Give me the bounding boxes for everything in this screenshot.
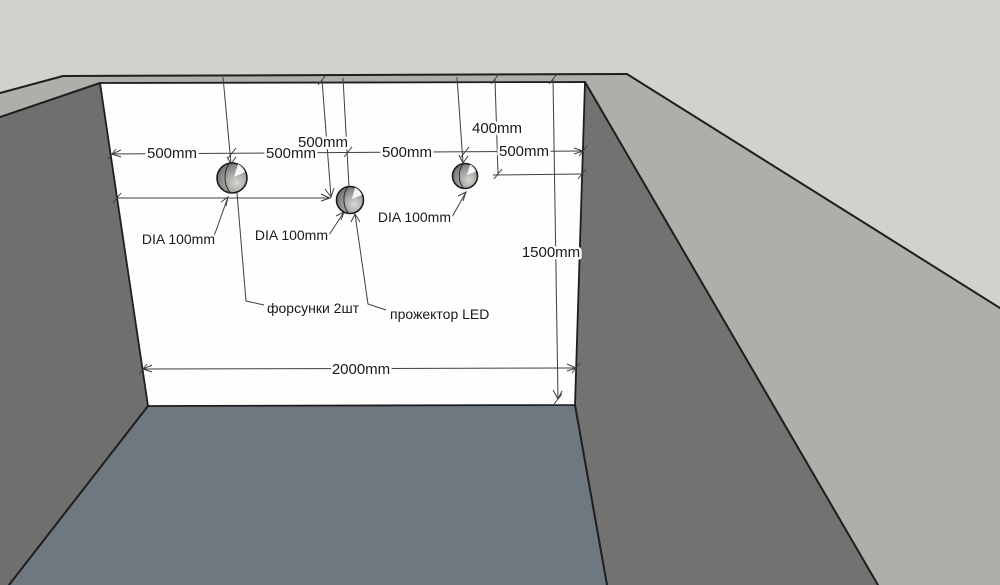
dim-label-wall-height[interactable]: 1500mm [522, 244, 580, 261]
callout-nozzles[interactable]: форсунки 2шт [267, 300, 360, 316]
hole-nozzle-2[interactable] [453, 164, 478, 189]
dim-label-nozzle-depth[interactable]: 400mm [472, 120, 522, 137]
dia-label-projector[interactable]: DIA 100mm [255, 227, 328, 243]
dia-label-nozzle-1[interactable]: DIA 100mm [142, 231, 215, 247]
hole-nozzle-1[interactable] [217, 163, 247, 193]
dim-label-wall-width[interactable]: 2000mm [332, 361, 390, 378]
dim-label-projector-depth[interactable]: 500mm [298, 134, 348, 151]
callout-projector[interactable]: прожектор LED [390, 306, 489, 322]
dim-label-chain-3[interactable]: 500mm [382, 144, 432, 161]
hole-projector[interactable] [337, 187, 364, 214]
dim-label-chain-4[interactable]: 500mm [499, 143, 549, 160]
dim-label-chain-1[interactable]: 500mm [147, 145, 197, 162]
dia-label-nozzle-2[interactable]: DIA 100mm [378, 209, 451, 225]
cad-viewport: 500mm 500mm 500mm 500mm 500mm 400mm 1500… [0, 0, 1000, 585]
